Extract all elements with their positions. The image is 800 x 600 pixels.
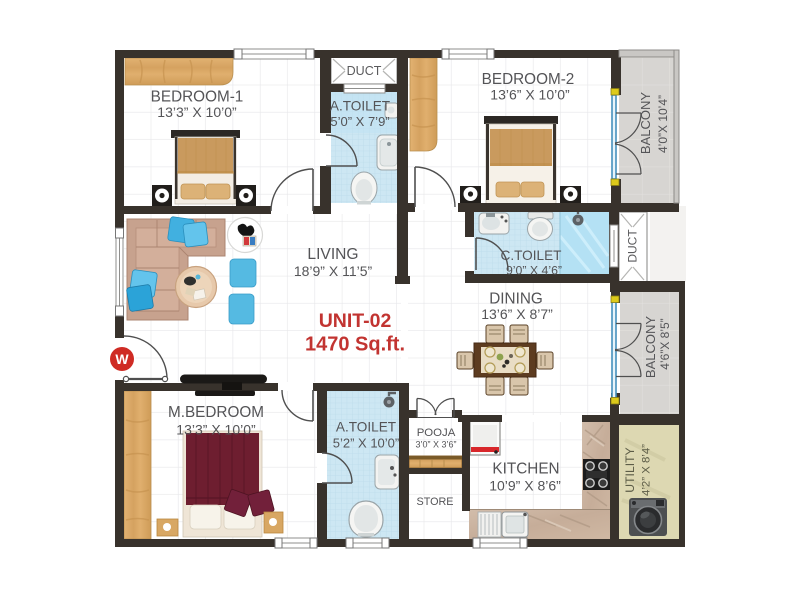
svg-text:C.TOILET: C.TOILET (501, 248, 562, 263)
svg-text:4’0”X 10’4”: 4’0”X 10’4” (656, 95, 670, 153)
svg-text:4’2” X 8’4”: 4’2” X 8’4” (641, 444, 653, 496)
svg-text:W: W (115, 351, 129, 367)
svg-text:10’9” X 8’6”: 10’9” X 8’6” (489, 478, 561, 494)
svg-text:13’3” X 10’0”: 13’3” X 10’0” (157, 104, 237, 120)
svg-text:13’6” X 10’0”: 13’6” X 10’0” (490, 87, 570, 103)
svg-text:A.TOILET: A.TOILET (336, 420, 396, 435)
svg-text:M.BEDROOM: M.BEDROOM (168, 404, 264, 421)
svg-text:POOJA: POOJA (417, 427, 456, 439)
svg-text:STORE: STORE (417, 496, 454, 508)
svg-text:LIVING: LIVING (307, 246, 358, 263)
svg-text:UNIT-02: UNIT-02 (319, 310, 392, 332)
svg-text:1470 Sq.ft.: 1470 Sq.ft. (305, 334, 405, 356)
svg-text:9’0” X 4’6”: 9’0” X 4’6” (506, 264, 562, 278)
svg-text:3’0” X 3’6”: 3’0” X 3’6” (415, 440, 456, 450)
svg-text:13’6” X 8’7”: 13’6” X 8’7” (481, 306, 553, 322)
svg-text:BEDROOM-2: BEDROOM-2 (482, 71, 575, 88)
svg-text:KITCHEN: KITCHEN (492, 461, 559, 478)
svg-text:5’0” X 7’9”: 5’0” X 7’9” (330, 114, 389, 129)
svg-text:BALCONY: BALCONY (643, 316, 658, 378)
svg-text:BEDROOM-1: BEDROOM-1 (151, 89, 244, 106)
svg-text:BALCONY: BALCONY (638, 92, 653, 154)
svg-text:5’2” X 10’0”: 5’2” X 10’0” (333, 436, 399, 451)
svg-text:UTILITY: UTILITY (623, 447, 637, 492)
svg-text:DUCT: DUCT (626, 229, 640, 263)
svg-text:18’9” X 11’5”: 18’9” X 11’5” (294, 263, 373, 279)
svg-text:A.TOILET: A.TOILET (330, 99, 390, 114)
svg-text:DINING: DINING (489, 291, 543, 308)
svg-text:13’3” X 10’0”: 13’3” X 10’0” (176, 422, 256, 438)
svg-text:DUCT: DUCT (347, 64, 382, 78)
svg-text:4’6”X 8’5”: 4’6”X 8’5” (658, 318, 672, 369)
